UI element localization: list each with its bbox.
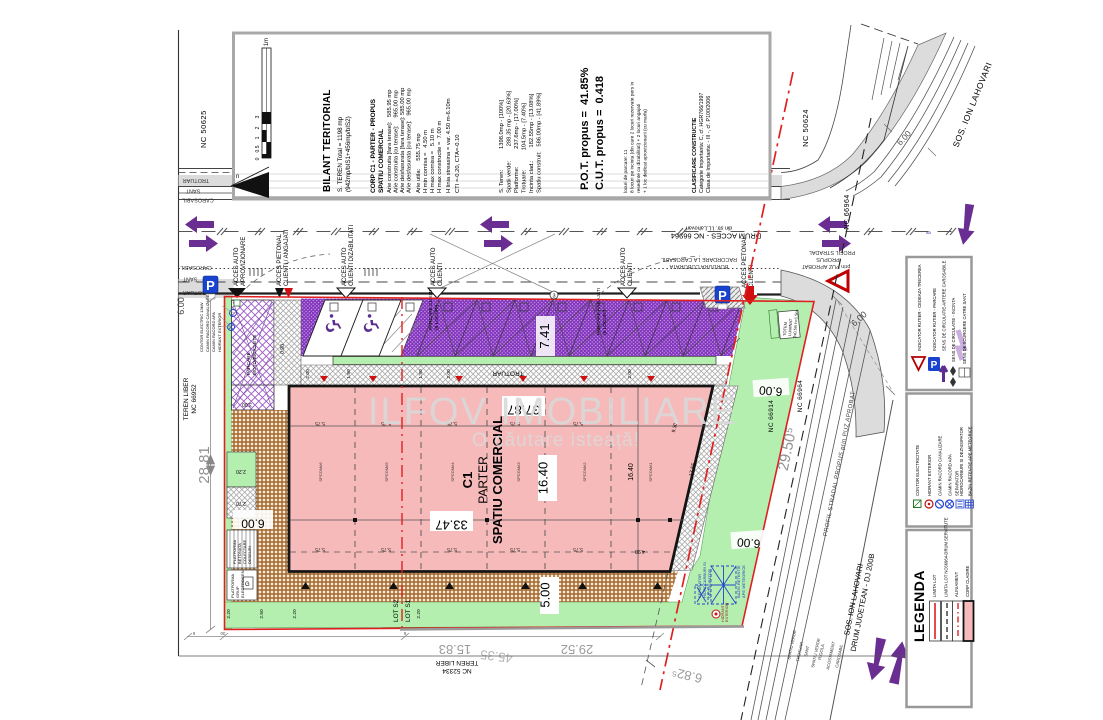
svg-text:5.75: 5.75 bbox=[510, 546, 520, 552]
svg-text:SPCOM#4: SPCOM#4 bbox=[450, 462, 455, 482]
svg-text:S. TEREN Total = 1198 mp: S. TEREN Total = 1198 mp bbox=[337, 116, 344, 192]
svg-text:n: n bbox=[236, 174, 239, 180]
svg-text:Arie construita [fara terase]:: Arie construita [fara terase]: 585.95 mp bbox=[387, 90, 393, 193]
svg-text:SENS DE SCURGERE CATRE SANT: SENS DE SCURGERE CATRE SANT bbox=[962, 293, 967, 364]
svg-text:Spatiu construit: 586.00mp -: Spatiu construit: 586.00mp - [41.89%] bbox=[537, 92, 543, 193]
svg-text:(942mp/bIS1+456mp/bIS2): (942mp/bIS1+456mp/bIS2) bbox=[345, 116, 352, 192]
svg-text:(6 LOCURI): (6 LOCURI) bbox=[602, 309, 608, 335]
svg-text:PROFIL STRADAL: PROFIL STRADAL bbox=[809, 249, 856, 255]
svg-text:locuri de parcare: 11: locuri de parcare: 11 bbox=[623, 149, 629, 193]
svg-text:NC 52334: NC 52334 bbox=[442, 667, 472, 674]
svg-text:TROTUAR: TROTUAR bbox=[183, 177, 210, 183]
svg-text:SANT: SANT bbox=[185, 188, 200, 194]
svg-text:2.00: 2.00 bbox=[305, 369, 311, 379]
svg-text:2.20: 2.20 bbox=[236, 468, 246, 474]
svg-text:RACORDARE LA CAROSABIL: RACORDARE LA CAROSABIL bbox=[661, 256, 737, 262]
svg-text:16.40: 16.40 bbox=[536, 462, 551, 495]
svg-text:ACCES PIETONAL: ACCES PIETONAL bbox=[742, 235, 748, 288]
svg-text:INDICATOR RUTIER - PARCARE: INDICATOR RUTIER - PARCARE bbox=[932, 288, 937, 351]
svg-text:DEZNISIPATOR: DEZNISIPATOR bbox=[707, 569, 712, 598]
svg-text:G: G bbox=[245, 582, 250, 588]
svg-text:HIDRANT EXTERIOR: HIDRANT EXTERIOR bbox=[927, 455, 932, 496]
svg-text:1m: 1m bbox=[264, 38, 270, 46]
svg-text:SPCOM#3: SPCOM#3 bbox=[516, 462, 521, 482]
svg-text:5.00: 5.00 bbox=[538, 582, 553, 607]
svg-text:P: P bbox=[206, 278, 215, 293]
svg-text:2.20: 2.20 bbox=[416, 609, 422, 619]
svg-text:TEREN LIBER: TEREN LIBER bbox=[183, 377, 190, 420]
svg-text:SENS DE CIRCULATIE - INCINTA: SENS DE CIRCULATIE - INCINTA bbox=[951, 298, 956, 362]
svg-text:+ 1 loc dedicat aprovizionarii: + 1 loc dedicat aprovizionarii (cu marfa… bbox=[643, 109, 649, 193]
svg-text:Arie utila: 555.75 mp: Arie utila: 555.75 mp bbox=[416, 133, 422, 193]
svg-text:6.00: 6.00 bbox=[736, 535, 761, 551]
svg-text:ACCES AUTO: ACCES AUTO bbox=[234, 247, 240, 286]
svg-text:TEREN LIBER: TEREN LIBER bbox=[435, 659, 478, 666]
svg-text:CORP CLADIRE: CORP CLADIRE bbox=[965, 565, 970, 597]
svg-text:2.00: 2.00 bbox=[627, 369, 633, 379]
svg-text:SPCOM#2: SPCOM#2 bbox=[582, 462, 587, 482]
svg-text:NC 66964: NC 66964 bbox=[844, 194, 851, 230]
svg-text:6.00: 6.00 bbox=[241, 517, 265, 531]
svg-text:1.90: 1.90 bbox=[418, 369, 424, 379]
svg-text:SPCOM#1: SPCOM#1 bbox=[648, 462, 653, 482]
svg-text:CAROSABIL: CAROSABIL bbox=[180, 264, 211, 270]
svg-text:3.00: 3.00 bbox=[242, 401, 252, 407]
svg-text:29.52: 29.52 bbox=[561, 642, 594, 657]
svg-text:8 locuri pe incinta (din care: 8 locuri pe incinta (din care 2 locuri r… bbox=[630, 81, 636, 193]
svg-text:33.47: 33.47 bbox=[435, 518, 468, 533]
svg-text:NC 66952: NC 66952 bbox=[191, 384, 198, 414]
svg-text:CLIENTI DIZABILITATI: CLIENTI DIZABILITATI bbox=[349, 225, 355, 286]
svg-text:SPCOM#5: SPCOM#5 bbox=[384, 462, 389, 482]
svg-text:NC 50624: NC 50624 bbox=[801, 109, 810, 147]
svg-text:LOT S2: LOT S2 bbox=[393, 599, 400, 622]
svg-text:SPCOM#6: SPCOM#6 bbox=[318, 462, 323, 482]
svg-text:ACCES AUTO: ACCES AUTO bbox=[342, 247, 348, 286]
svg-text:CAMIN RACORD APA: CAMIN RACORD APA bbox=[211, 312, 216, 352]
svg-text:2.70: 2.70 bbox=[236, 500, 246, 506]
svg-text:6.00: 6.00 bbox=[758, 383, 783, 399]
svg-text:HIDROCARBURI SI DEZNISIPATOR: HIDROCARBURI SI DEZNISIPATOR bbox=[959, 427, 964, 496]
svg-text:6.00: 6.00 bbox=[176, 297, 186, 315]
svg-text:DESEURI: DESEURI bbox=[247, 546, 252, 564]
svg-text:5.75: 5.75 bbox=[447, 546, 457, 552]
svg-text:PARCARE: PARCARE bbox=[246, 352, 252, 375]
svg-text:xa: xa bbox=[926, 230, 931, 235]
svg-text:7.41: 7.41 bbox=[537, 323, 552, 348]
svg-text:PARCARE ANGAJATI: PARCARE ANGAJATI bbox=[596, 288, 602, 335]
svg-text:HIDRANT EXTERIOR: HIDRANT EXTERIOR bbox=[217, 313, 222, 352]
svg-text:H max cornisa = 5.10 m: H max cornisa = 5.10 m bbox=[430, 128, 436, 193]
svg-text:2.20: 2.20 bbox=[292, 609, 298, 619]
svg-text:BORDURA COBORATA: BORDURA COBORATA bbox=[669, 263, 728, 269]
svg-text:3: 3 bbox=[255, 115, 261, 118]
svg-text:16.40: 16.40 bbox=[628, 463, 635, 481]
svg-text:Trotuare: 104.5mp -: Trotuare: 104.5mp - [7.40%] bbox=[522, 103, 528, 193]
svg-text:5.75: 5.75 bbox=[381, 546, 391, 552]
svg-text:H linia streasina = var. 4.50: H linia streasina = var. 4.50 m-6.10m bbox=[446, 98, 452, 193]
svg-text:Arie desfasurata [fara terase]: Arie desfasurata [fara terase]: 585.00 m… bbox=[400, 88, 406, 193]
svg-text:SENS DE CIRCULATIE-ARTERE CARO: SENS DE CIRCULATIE-ARTERE CAROSABILE bbox=[942, 260, 947, 351]
svg-text:C.U.T. propus = 0.418: C.U.T. propus = 0.418 bbox=[594, 76, 606, 190]
svg-text:APE METEORICE: APE METEORICE bbox=[741, 565, 746, 598]
svg-text:30: 30 bbox=[220, 631, 226, 636]
svg-text:CORP C1 - PARTER - PROPUS: CORP C1 - PARTER - PROPUS bbox=[370, 98, 377, 193]
svg-text:BILANT TERITORIAL: BILANT TERITORIAL bbox=[322, 89, 333, 192]
svg-text:1: 1 bbox=[255, 136, 261, 139]
svg-text:CAROSABIL: CAROSABIL bbox=[182, 197, 213, 203]
svg-text:ILFOV IMOBILIARE: ILFOV IMOBILIARE bbox=[368, 391, 738, 433]
svg-text:SPATIU COMERCIAL: SPATIU COMERCIAL bbox=[378, 129, 385, 193]
svg-text:APROVIZIONARE: APROVIZIONARE bbox=[241, 237, 247, 286]
svg-text:CONTOR ELECTRICITATE: CONTOR ELECTRICITATE bbox=[915, 445, 920, 496]
svg-text:LIMITA LOT: LIMITA LOT bbox=[932, 574, 937, 597]
svg-text:SANT: SANT bbox=[182, 276, 197, 282]
svg-text:5.75: 5.75 bbox=[573, 546, 583, 552]
svg-text:CONTOR ELECTRIC 13kW: CONTOR ELECTRIC 13kW bbox=[199, 302, 204, 352]
svg-text:S. Teren: 1398.0mp: S. Teren: 1398.0mp - [100%] bbox=[499, 100, 505, 193]
svg-text:INDICATOR RUTIER - CEDEAZA TRE: INDICATOR RUTIER - CEDEAZA TRECEREA bbox=[917, 264, 922, 351]
svg-text:Categorie Importanta: C, cf. H: Categorie Importanta: C, cf. HGR766/1997 bbox=[699, 93, 705, 193]
svg-text:CLIENTI: CLIENTI bbox=[749, 265, 755, 288]
svg-text:2.50: 2.50 bbox=[259, 609, 265, 619]
svg-text:ALINIAMENT: ALINIAMENT bbox=[954, 571, 959, 597]
svg-text:ACCES AUTO: ACCES AUTO bbox=[431, 247, 437, 286]
svg-text:Arie desfasurata [cu terase]:: Arie desfasurata [cu terase]: 965.00 mp bbox=[407, 88, 413, 193]
svg-text:NC 50625: NC 50625 bbox=[199, 110, 208, 148]
svg-text:LOT S1: LOT S1 bbox=[405, 599, 412, 622]
svg-text:EXTERIOR: EXTERIOR bbox=[725, 602, 729, 622]
svg-text:NC 66964: NC 66964 bbox=[797, 380, 804, 412]
svg-text:PROPUS: PROPUS bbox=[816, 256, 840, 262]
svg-text:PARCARE CLIENTI: PARCARE CLIENTI bbox=[428, 287, 434, 330]
svg-text:5.75: 5.75 bbox=[315, 420, 325, 426]
svg-text:CAMIN RACORD CANALIZARE: CAMIN RACORD CANALIZARE bbox=[938, 436, 943, 496]
svg-text:H max constructie = 7.00 m: H max constructie = 7.00 m bbox=[437, 121, 443, 193]
svg-text:CTI =-0.20, CTA=-0.10: CTI =-0.20, CTA=-0.10 bbox=[455, 134, 461, 193]
svg-text:O căutare isteață!: O căutare isteață! bbox=[472, 430, 640, 451]
svg-text:ACCES AUTO: ACCES AUTO bbox=[621, 247, 627, 286]
svg-text:MOTO/BICICLETE: MOTO/BICICLETE bbox=[252, 335, 258, 375]
svg-text:P: P bbox=[931, 360, 938, 371]
svg-text:5.75: 5.75 bbox=[315, 546, 325, 552]
svg-text:CAMIN RACORD APA: CAMIN RACORD APA bbox=[948, 454, 953, 496]
svg-text:C1: C1 bbox=[460, 472, 475, 489]
svg-text:Clasa de Importanta: - III -,: Clasa de Importanta: - III -, cf. P100/2… bbox=[706, 96, 712, 193]
svg-text:LIMITA LOT NC66964-DRUM SERVIT: LIMITA LOT NC66964-DRUM SERVITUTE bbox=[944, 517, 949, 597]
svg-text:H min cornisa = 4.50 m: H min cornisa = 4.50 m bbox=[423, 130, 429, 193]
svg-text:Arie construita [cu terase]:: Arie construita [cu terase]: 965.00 mp bbox=[394, 90, 400, 193]
svg-text:(8 LOCURI): (8 LOCURI) bbox=[434, 304, 440, 330]
svg-text:Incinta clad.: 182.55mp: Incinta clad.: 182.55mp - [13.08%] bbox=[529, 93, 535, 193]
svg-text:15.83: 15.83 bbox=[439, 642, 472, 657]
svg-text:28.81: 28.81 bbox=[196, 446, 213, 484]
svg-text:resedinte cu dizabilitati) + 2: resedinte cu dizabilitati) + 2 locuri an… bbox=[636, 104, 642, 193]
svg-text:Platforme: 237.6mp -: Platforme: 237.6mp - [17.00%] bbox=[514, 98, 520, 193]
svg-text:ELECTROGEN: ELECTROGEN bbox=[240, 570, 245, 598]
svg-text:CLIENTI: CLIENTI bbox=[438, 263, 444, 286]
svg-text:TROTUAR: TROTUAR bbox=[492, 370, 524, 377]
svg-text:prin PUZ APROBAT: prin PUZ APROBAT bbox=[801, 263, 850, 269]
svg-text:Spatii verde: 288.35 m: Spatii verde: 288.35 mp - [20.63%] bbox=[507, 90, 513, 193]
svg-text:NC 66914: NC 66914 bbox=[768, 400, 775, 432]
svg-text:1.90: 1.90 bbox=[346, 369, 352, 379]
svg-text:3: 3 bbox=[552, 294, 555, 300]
svg-text:0: 0 bbox=[255, 157, 261, 160]
svg-text:ACCES PIETONAL: ACCES PIETONAL bbox=[277, 233, 283, 286]
svg-text:CLIENTI / ANGAJATI: CLIENTI / ANGAJATI bbox=[284, 229, 290, 286]
svg-text:LEGENDA: LEGENDA bbox=[911, 570, 927, 642]
svg-text:2.00: 2.00 bbox=[446, 369, 452, 379]
svg-text:CLASIFICARE CONSTRUCTIE: CLASIFICARE CONSTRUCTIE bbox=[692, 117, 698, 193]
svg-text:2: 2 bbox=[255, 126, 261, 129]
svg-text:4.90: 4.90 bbox=[635, 548, 645, 554]
svg-text:PARTER: PARTER bbox=[476, 456, 490, 504]
svg-text:2.20: 2.20 bbox=[226, 609, 232, 619]
svg-text:BAZIN RETENTIE APE METEORICE: BAZIN RETENTIE APE METEORICE bbox=[968, 426, 973, 496]
svg-text:CLIENTI: CLIENTI bbox=[628, 263, 634, 286]
svg-text:0.90: 0.90 bbox=[280, 344, 286, 354]
svg-text:din str. I.L.Lahovari: din str. I.L.Lahovari bbox=[686, 225, 732, 231]
svg-text:P.O.T. propus = 41.85%: P.O.T. propus = 41.85% bbox=[579, 67, 591, 190]
svg-text:0.5: 0.5 bbox=[255, 145, 261, 152]
